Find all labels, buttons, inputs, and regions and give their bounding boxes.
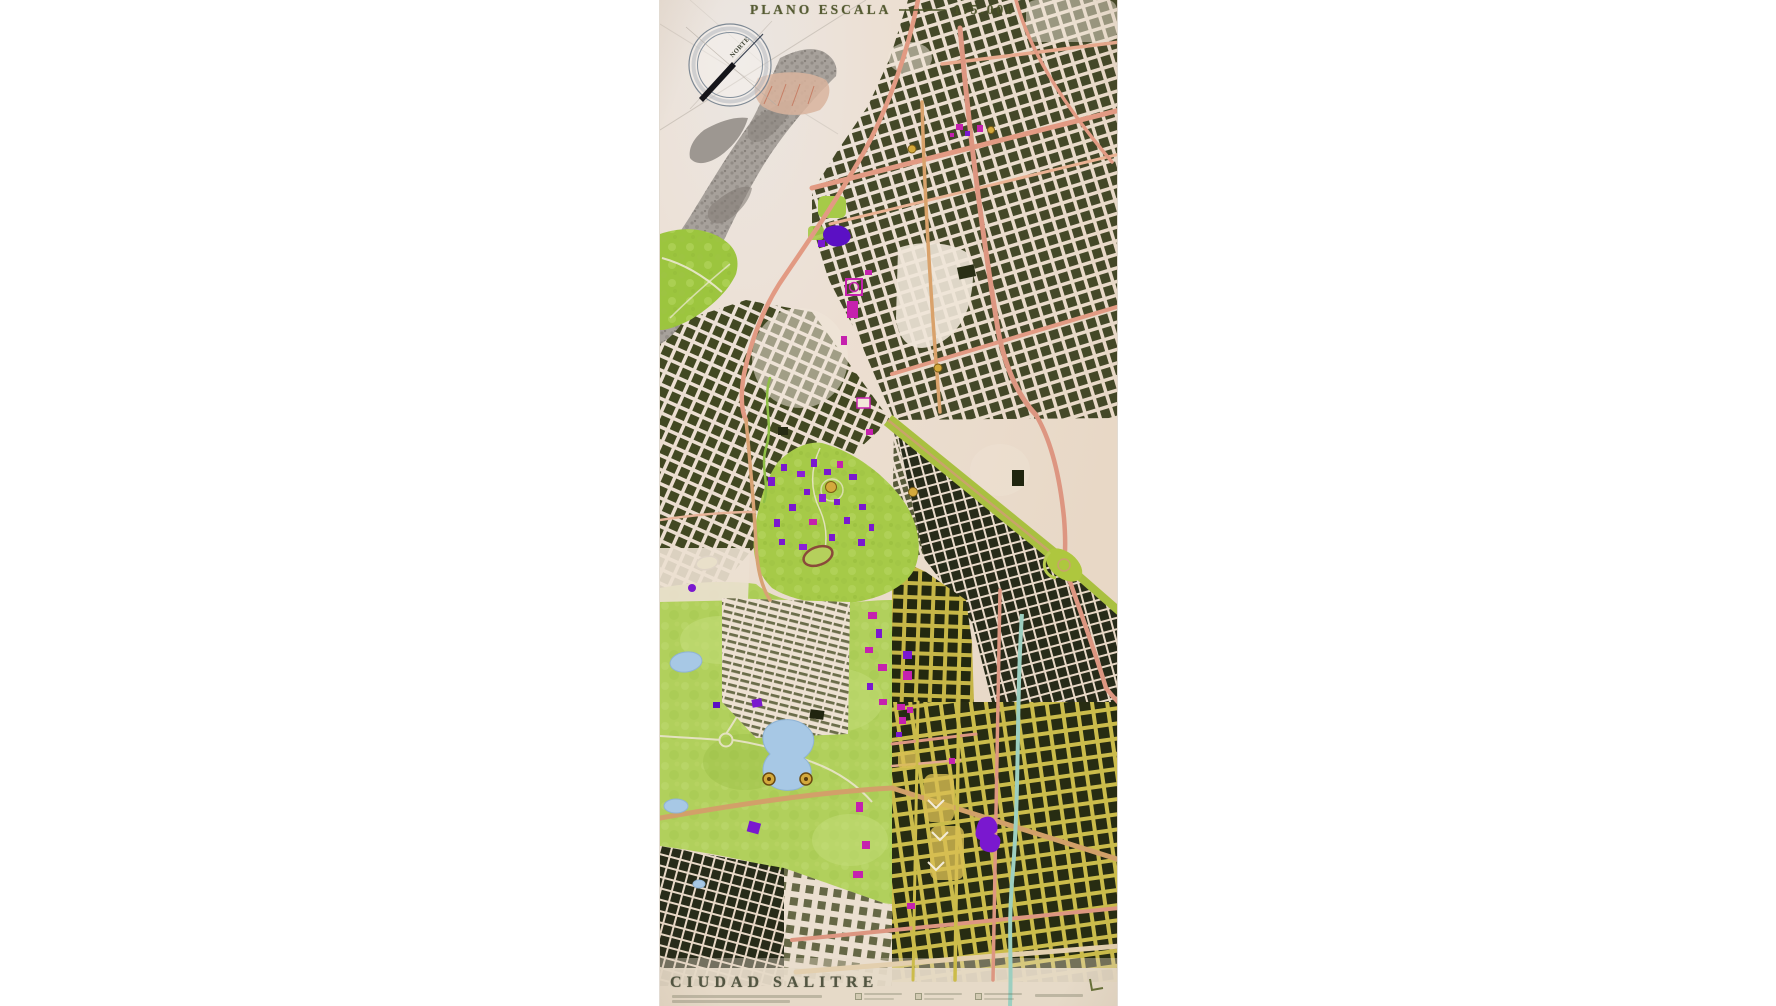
legend-item (855, 992, 907, 1004)
map-title: PLANO ESCALA (750, 2, 891, 18)
map-footer: CIUDAD SALITRE (660, 968, 1117, 1006)
legend-item (915, 992, 967, 1004)
legend-swatch (915, 993, 922, 1000)
footer-subtitle-smudge (672, 1000, 790, 1003)
screenshot-canvas: NORTE PLANO ESCALA 1:5.000 CIUDAD SALITR… (0, 0, 1776, 1006)
scale-label: 1:5.000 (953, 2, 1016, 18)
scan-vignette (660, 0, 1117, 1006)
legend-item (975, 992, 1027, 1004)
map-scan: NORTE PLANO ESCALA 1:5.000 CIUDAD SALITR… (660, 0, 1117, 1006)
map-title-bar: PLANO ESCALA 1:5.000 (750, 2, 1016, 18)
title-dash (899, 9, 945, 11)
legend-swatch (855, 993, 862, 1000)
legend-note-smudge (1035, 994, 1083, 997)
legend-swatch (975, 993, 982, 1000)
map-artwork: NORTE (660, 0, 1117, 1006)
footer-title: CIUDAD SALITRE (670, 974, 878, 992)
footer-subtitle-smudge (672, 995, 822, 998)
